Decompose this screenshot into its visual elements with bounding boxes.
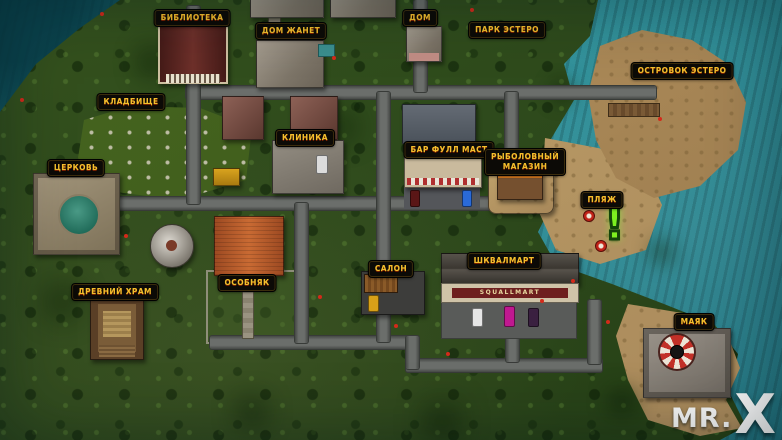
mansion-building[interactable]	[214, 216, 284, 276]
water-tower	[150, 224, 194, 268]
pool	[318, 44, 335, 57]
label-church[interactable]: Церковь	[48, 160, 104, 176]
label-bar-full-mast[interactable]: Бар Фулл Маст	[404, 142, 493, 158]
label-library[interactable]: Библиотека	[155, 10, 230, 26]
label-lighthouse[interactable]: Маяк	[675, 314, 714, 330]
house-top-2	[330, 0, 396, 18]
white-car-2	[472, 308, 483, 327]
white-car	[316, 155, 328, 174]
bar-warehouse	[402, 104, 476, 144]
house-building[interactable]	[406, 26, 442, 62]
label-estero-islet[interactable]: Островок Эстеро	[632, 63, 733, 79]
watermark-x: X	[734, 392, 776, 438]
label-salon[interactable]: Салон	[369, 261, 413, 277]
game-map: SQUALLMART ! Библиотека Дом Жанет Дом Па…	[0, 0, 782, 440]
mr-x-watermark: MR. X	[671, 392, 776, 438]
clinic-house-1	[222, 96, 264, 140]
pier	[608, 103, 660, 117]
watermark-mr: MR.	[671, 405, 732, 432]
lighthouse-tower	[658, 333, 696, 371]
church-dome	[58, 194, 100, 236]
purple-car	[528, 308, 539, 327]
label-fishing-shop-line2: магазин	[491, 162, 559, 171]
bulldozer	[213, 168, 240, 186]
lighthouse-fort[interactable]	[643, 328, 731, 398]
road-south-jog	[406, 336, 419, 369]
magenta-car	[504, 306, 515, 327]
yellow-bus	[368, 295, 379, 312]
dark-red-car	[410, 190, 420, 207]
label-park-estero[interactable]: Парк Эстеро	[469, 22, 545, 38]
label-mansion[interactable]: Особняк	[219, 275, 276, 291]
beach-umbrella-icon	[583, 210, 595, 222]
road-beach-spur	[588, 300, 601, 364]
house-top-1	[250, 0, 324, 18]
library-building[interactable]	[158, 24, 228, 84]
road-south-east	[406, 359, 602, 372]
road-mansion-vertical	[295, 203, 308, 343]
church-building[interactable]	[33, 173, 120, 255]
blue-car	[462, 190, 472, 207]
flower-dots	[0, 0, 4, 4]
label-beach[interactable]: Пляж	[581, 192, 622, 208]
squallmart-facade: SQUALLMART	[441, 283, 579, 303]
clinic-building[interactable]	[272, 140, 344, 194]
label-clinic[interactable]: Клиника	[276, 130, 334, 146]
label-fishing-shop-line1: Рыболовный	[491, 152, 559, 161]
ancient-temple-building[interactable]	[90, 296, 144, 360]
road-squallmart-connector	[506, 338, 519, 362]
janet-house-building[interactable]	[256, 40, 324, 88]
label-fishing-shop[interactable]: Рыболовный магазин	[485, 149, 565, 175]
label-cemetery[interactable]: Кладбище	[97, 94, 164, 110]
label-house[interactable]: Дом	[403, 10, 437, 26]
label-ancient-temple[interactable]: Древний храм	[72, 284, 158, 300]
label-janet-house[interactable]: Дом Жанет	[256, 23, 326, 39]
label-squallmart[interactable]: Шквалмарт	[468, 253, 541, 269]
squallmart-storefront-sign: SQUALLMART	[452, 288, 568, 298]
